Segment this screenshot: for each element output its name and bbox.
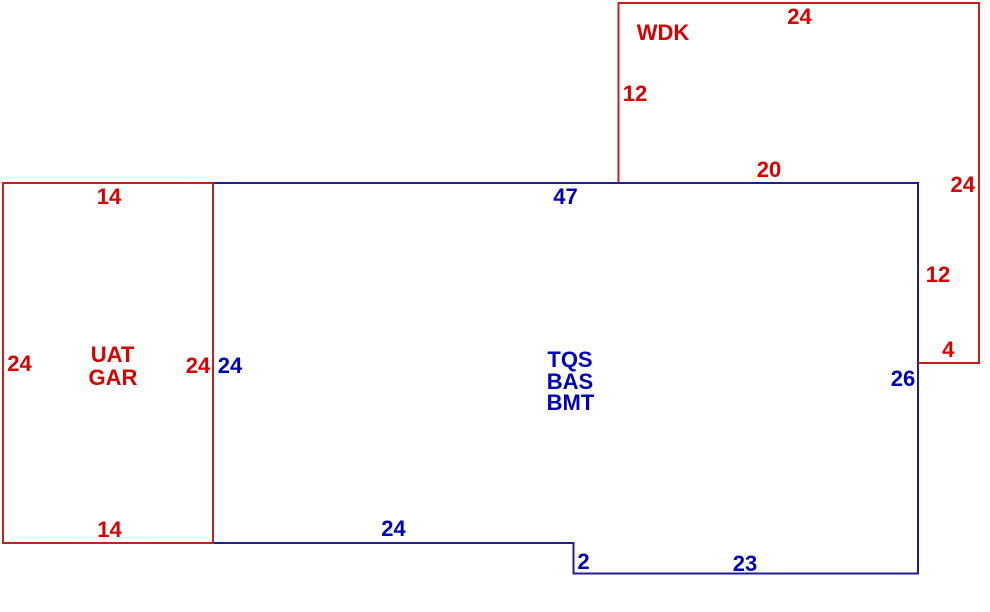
svg-text:UAT: UAT xyxy=(91,342,135,367)
svg-text:BMT: BMT xyxy=(547,390,595,415)
svg-text:14: 14 xyxy=(97,184,122,209)
svg-text:12: 12 xyxy=(623,81,647,106)
svg-text:23: 23 xyxy=(733,551,757,576)
svg-text:4: 4 xyxy=(942,337,955,362)
svg-text:24: 24 xyxy=(787,4,812,29)
svg-text:26: 26 xyxy=(891,366,915,391)
svg-text:24: 24 xyxy=(381,516,406,541)
svg-text:14: 14 xyxy=(97,517,122,542)
svg-text:GAR: GAR xyxy=(89,365,138,390)
svg-text:12: 12 xyxy=(926,262,950,287)
svg-text:24: 24 xyxy=(186,353,211,378)
svg-text:24: 24 xyxy=(950,172,975,197)
svg-text:24: 24 xyxy=(218,353,243,378)
svg-text:47: 47 xyxy=(553,184,577,209)
svg-text:WDK: WDK xyxy=(637,20,690,45)
svg-text:2: 2 xyxy=(577,549,589,574)
svg-text:24: 24 xyxy=(7,351,32,376)
svg-text:20: 20 xyxy=(757,157,781,182)
